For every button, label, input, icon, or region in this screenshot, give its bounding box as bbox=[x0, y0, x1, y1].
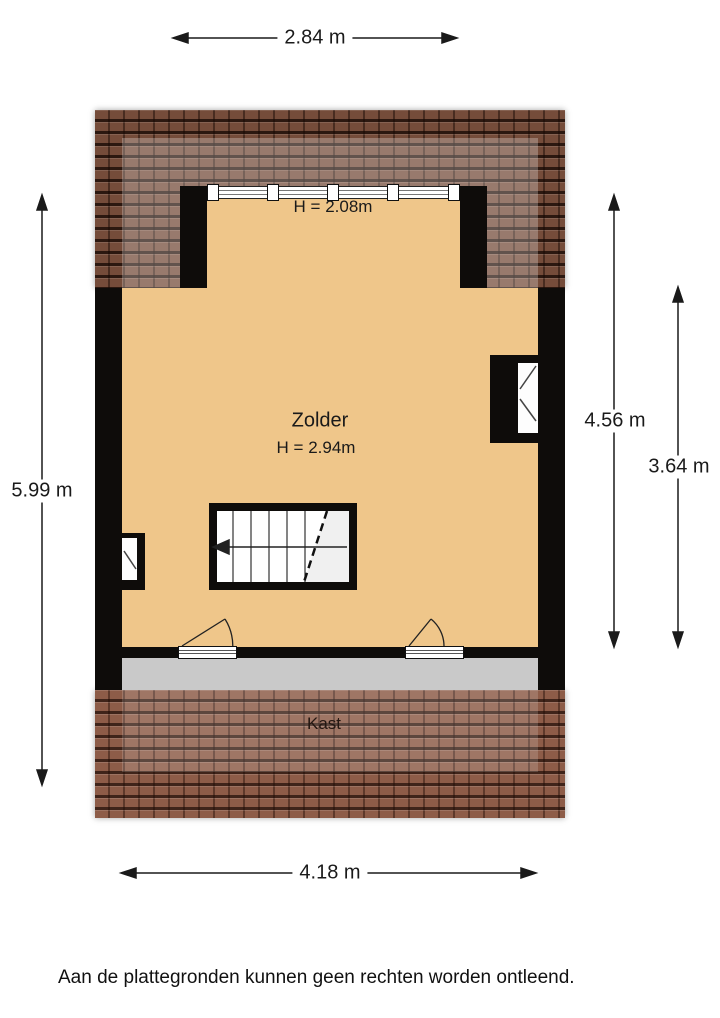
window-mullion bbox=[207, 184, 219, 201]
skylight-left-frame bbox=[95, 533, 145, 590]
dormer-height-label: H = 2.08m bbox=[294, 197, 373, 217]
room-name-label: Zolder bbox=[292, 410, 349, 433]
wall-right bbox=[538, 288, 565, 690]
dimension-label-right-outer: 4.56 m bbox=[577, 410, 652, 433]
wall-left bbox=[95, 288, 122, 690]
wall-bottom bbox=[95, 647, 565, 658]
skylight-left-pane bbox=[122, 538, 137, 580]
floorplan-canvas: 2.84 m 4.18 m 5.99 m 4.56 m 3.64 m H = 2… bbox=[0, 0, 720, 1018]
window-mullion bbox=[387, 184, 399, 201]
dimension-label-left: 5.99 m bbox=[4, 480, 79, 503]
window-mullion bbox=[267, 184, 279, 201]
closet-label: Kast bbox=[307, 714, 341, 734]
door-right-threshold bbox=[405, 646, 464, 659]
skylight-right-pane bbox=[518, 363, 538, 433]
window-mullion bbox=[448, 184, 460, 201]
attic-floor bbox=[122, 288, 538, 647]
dormer-wall-right bbox=[460, 186, 487, 288]
staircase bbox=[217, 511, 349, 582]
closet-floor bbox=[122, 658, 538, 690]
dimension-label-top: 2.84 m bbox=[277, 27, 352, 50]
door-left-threshold bbox=[178, 646, 237, 659]
disclaimer-text: Aan de plattegronden kunnen geen rechten… bbox=[58, 967, 575, 989]
dormer-wall-left bbox=[180, 186, 207, 288]
dimension-label-bottom: 4.18 m bbox=[292, 862, 367, 885]
room-height-label: H = 2.94m bbox=[277, 438, 356, 458]
dimension-label-right-inner: 3.64 m bbox=[641, 456, 716, 479]
